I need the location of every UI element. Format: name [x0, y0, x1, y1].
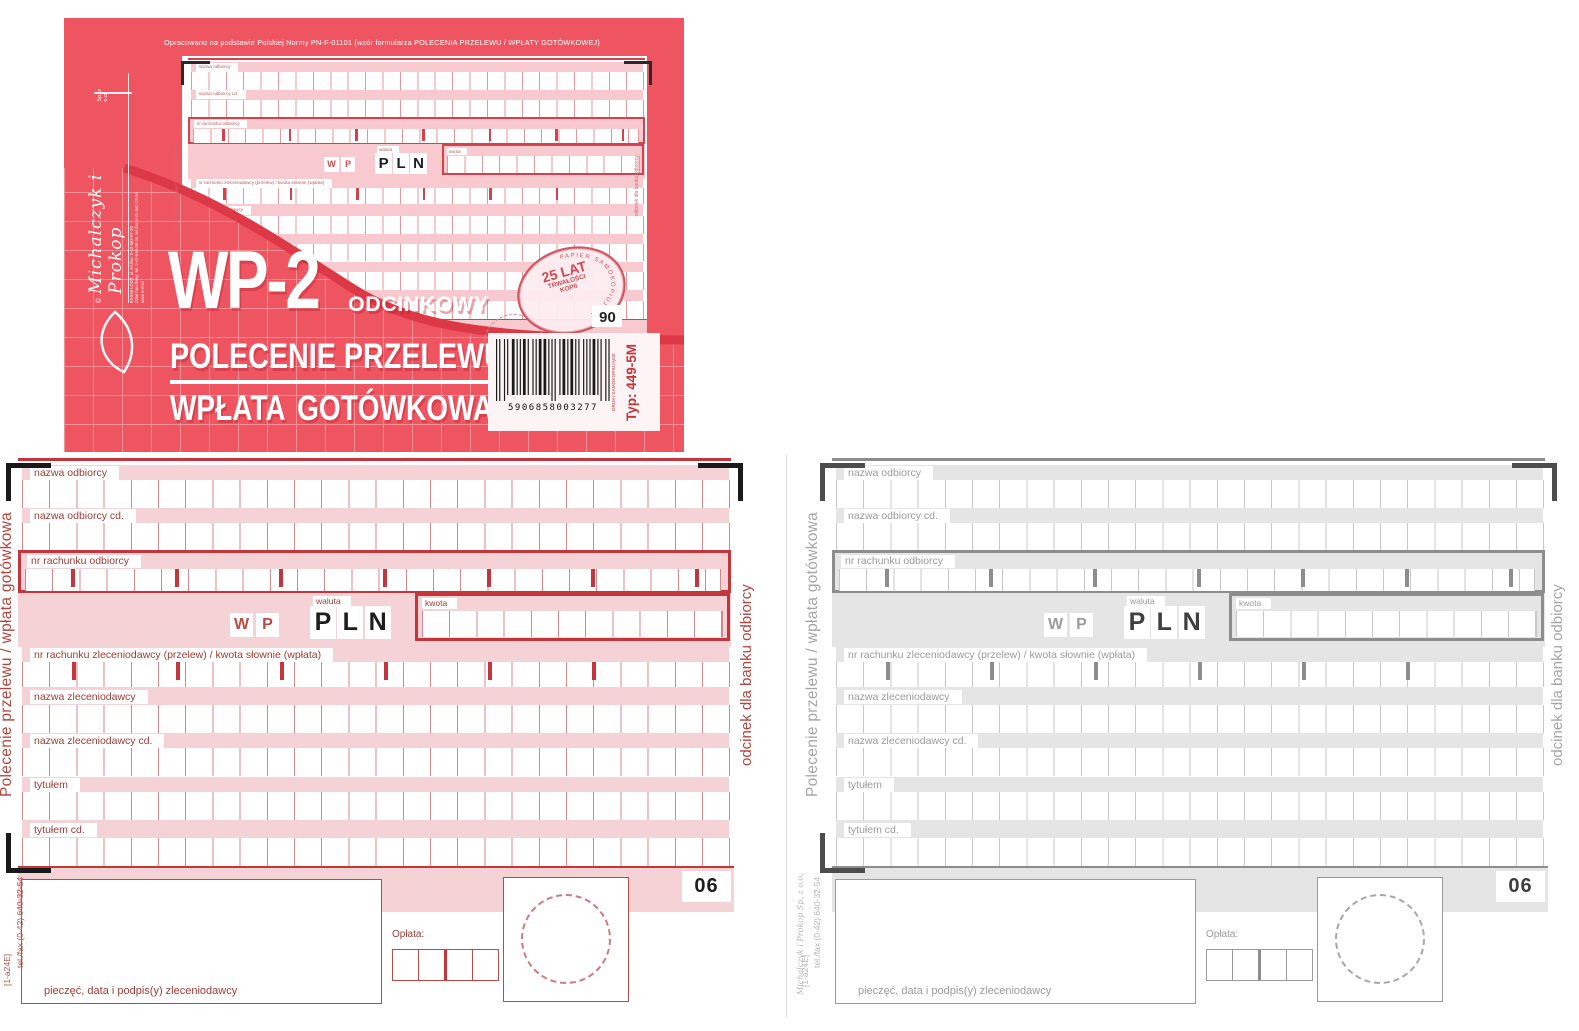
grid-cells	[22, 792, 730, 820]
barcode-print-type-label: DRUKI SAMOKOPIUJĄCE	[612, 337, 617, 427]
account-number-box: nr rachunku odbiorcy	[832, 550, 1545, 593]
digit-group-tick	[488, 662, 492, 680]
sheet-edge-divider	[786, 455, 787, 1017]
bank-stamp-circle	[1335, 894, 1425, 984]
currency-letter-box: N	[1179, 606, 1205, 639]
cover-sheet-number: 06	[592, 305, 622, 327]
barcode-digits: 5906858003277	[488, 403, 618, 413]
digit-group-tick	[1093, 569, 1097, 587]
grid-cells	[22, 748, 730, 776]
digit-group-tick	[989, 569, 993, 587]
field-label: kwota	[1236, 598, 1271, 609]
digit-group-tick	[1094, 662, 1098, 680]
wp-letter-box: W	[1044, 613, 1067, 637]
digit-group-tick	[695, 569, 699, 587]
digit-group-tick	[592, 662, 596, 680]
brand-name-line: © Michalczyk i Prokop Sp. z o.o.	[86, 73, 129, 303]
field-band: tytułem cd.	[836, 820, 1543, 838]
field-label: nr rachunku zleceniodawcy (przelew) / kw…	[30, 648, 333, 662]
digit-group-tick	[175, 569, 179, 587]
signature-label: pieczęć, data i podpis(y) zleceniodawcy	[44, 985, 237, 997]
currency-letter-box: N	[365, 606, 391, 639]
cover-sheet-number-value: 06	[599, 308, 616, 325]
digit-group-tick	[1509, 569, 1513, 587]
brand-block: © Michalczyk i Prokop Sp. z o.o. 93-558 …	[86, 73, 142, 303]
field-band: tytułem cd.	[22, 820, 729, 838]
field-label: nazwa zleceniodawcy	[844, 690, 962, 704]
signature-label: pieczęć, data i podpis(y) zleceniodawcy	[858, 985, 1051, 997]
digit-group-tick	[279, 569, 283, 587]
digit-group-tick	[1406, 662, 1410, 680]
grid-cells	[22, 838, 730, 866]
field-label: nazwa odbiorcy cd.	[30, 509, 136, 523]
bank-stamp-box	[1317, 877, 1443, 1002]
signature-box: pieczęć, data i podpis(y) zleceniodawcy	[21, 879, 382, 1004]
wp-letter-box: W	[230, 613, 253, 637]
wp-letter-box: P	[256, 613, 279, 637]
digit-group-tick	[384, 662, 388, 680]
fee-cell	[1287, 950, 1312, 980]
sheet-number: 06	[1496, 871, 1545, 902]
grid-cells	[836, 480, 1544, 508]
fee-cell	[1261, 950, 1287, 980]
grid-cells	[836, 662, 1544, 687]
field-band: tytułem	[22, 777, 729, 792]
account-number-box: nr rachunku odbiorcy	[18, 550, 731, 593]
transfer-form-original: nazwa odbiorcynazwa odbiorcy cd.nr rachu…	[8, 455, 734, 1011]
form-right-caption: odcinek dla banku odbiorcy	[738, 558, 755, 793]
fee-boxes	[392, 949, 499, 981]
currency-letter-box: P	[1124, 606, 1150, 639]
fee-cell	[1233, 950, 1261, 980]
amount-box: kwota	[415, 593, 730, 641]
digit-group-tick	[1198, 662, 1202, 680]
field-band: nr rachunku zleceniodawcy (przelew) / kw…	[836, 647, 1543, 662]
cover-sheet: nazwa odbiorcynazwa odbiorcy cd.nr rachu…	[64, 18, 684, 452]
grid-cells	[836, 705, 1544, 733]
digit-group-tick	[487, 569, 491, 587]
field-label: tytułem	[844, 778, 894, 792]
field-band: nazwa zleceniodawcy	[836, 687, 1543, 705]
digit-group-tick	[71, 569, 75, 587]
sheet-topline	[832, 458, 1545, 461]
grid-cells	[836, 748, 1544, 776]
grid-cells	[22, 523, 730, 551]
norm-reference-line: Opracowano na podstawie Polskiej Normy P…	[164, 38, 600, 47]
fee-label: Opłata:	[392, 929, 424, 940]
field-label: nr rachunku odbiorcy	[841, 555, 955, 568]
bank-stamp-circle	[521, 894, 611, 984]
corner-bracket-bl	[820, 833, 865, 873]
digit-group-tick	[885, 569, 889, 587]
grid-cells	[422, 611, 723, 637]
brand-logo-icon	[84, 310, 146, 376]
field-label: nr rachunku zleceniodawcy (przelew) / kw…	[844, 648, 1147, 662]
field-band: nazwa odbiorcy cd.	[836, 508, 1543, 523]
barcode-icon	[496, 339, 610, 401]
field-label: kwota	[422, 598, 457, 609]
currency-letter-box: P	[310, 606, 336, 639]
field-band: nazwa zleceniodawcy cd.	[22, 733, 729, 748]
grid-cells	[839, 569, 1535, 591]
grid-cells	[836, 838, 1544, 866]
field-band: tytułem	[836, 777, 1543, 792]
bank-stamp-box	[503, 877, 629, 1002]
field-band: nr rachunku zleceniodawcy (przelew) / kw…	[22, 647, 729, 662]
footer-phone: tel./fax (0-42) 640-32-54	[812, 866, 822, 978]
digit-group-tick	[72, 662, 76, 680]
field-label: nr rachunku odbiorcy	[27, 555, 141, 568]
corner-bracket-tr	[1512, 463, 1557, 501]
signature-box: pieczęć, data i podpis(y) zleceniodawcy	[835, 879, 1196, 1004]
field-label: nazwa zleceniodawcy cd.	[30, 734, 164, 748]
footer-form-code: [1-a24E]	[2, 938, 12, 1002]
digit-group-tick	[1197, 569, 1201, 587]
fee-cell	[419, 950, 447, 980]
transfer-form-copy: nazwa odbiorcynazwa odbiorcy cd.nr rachu…	[822, 455, 1548, 1011]
field-band: nazwa odbiorcy cd.	[22, 508, 729, 523]
fee-boxes	[1206, 949, 1313, 981]
field-label: tytułem	[30, 778, 80, 792]
form-right-caption: odcinek dla banku odbiorcy	[1549, 558, 1566, 793]
fee-cell	[473, 950, 498, 980]
digit-group-tick	[1301, 569, 1305, 587]
fee-cell	[393, 950, 419, 980]
product-title: WP-2	[168, 240, 319, 322]
barcode-model-label: Typ: 449-5M	[624, 335, 639, 429]
field-label: nazwa zleceniodawcy	[30, 690, 148, 704]
grid-cells	[22, 480, 730, 508]
currency-letter-box: L	[337, 606, 363, 639]
currency-letter-box: L	[1151, 606, 1177, 639]
subtitle-divider	[170, 380, 542, 384]
footer-phone: tel./fax (0-42) 640-32-54	[15, 866, 25, 978]
wp-letter-box: P	[1070, 613, 1093, 637]
digit-group-tick	[1302, 662, 1306, 680]
field-band: nazwa odbiorcy	[22, 465, 729, 480]
sheet-topline	[18, 458, 731, 461]
grid-cells	[22, 705, 730, 733]
brand-name: Michalczyk i Prokop	[86, 106, 126, 294]
product-subtitle-1: POLECENIE PRZELEWU	[170, 338, 505, 377]
field-label: nazwa odbiorcy cd.	[844, 509, 950, 523]
form-left-caption: Polecenie przelewu / wpłata gotówkowa	[804, 468, 822, 840]
product-title-suffix: ODCINKOWY	[348, 292, 489, 317]
fee-cell	[1207, 950, 1233, 980]
barcode-box: 5906858003277 DRUKI SAMOKOPIUJĄCE Typ: 4…	[488, 333, 660, 431]
field-band: nazwa odbiorcy	[836, 465, 1543, 480]
grid-cells	[1236, 611, 1537, 637]
field-band: nazwa zleceniodawcy cd.	[836, 733, 1543, 748]
digit-group-tick	[176, 662, 180, 680]
brand-suffix: Sp. z o.o.	[97, 79, 109, 102]
fee-cell	[447, 950, 473, 980]
digit-group-tick	[886, 662, 890, 680]
grid-cells	[22, 662, 730, 687]
digit-group-tick	[591, 569, 595, 587]
form-left-caption: Polecenie przelewu / wpłata gotówkowa	[0, 468, 16, 840]
copyright-mark: ©	[96, 298, 103, 303]
grid-cells	[836, 792, 1544, 820]
corner-bracket-tr	[698, 463, 743, 501]
amount-box: kwota	[1229, 593, 1544, 641]
mini-form-right-caption: odcinek dla banku odbiorcy	[634, 88, 640, 283]
brand-address-line: www e-mail	[140, 73, 145, 303]
grid-cells	[836, 523, 1544, 551]
footer-form-code: [1-a24E]	[800, 940, 810, 1002]
page: nazwa odbiorcynazwa odbiorcy cd.nr rachu…	[0, 0, 1579, 1031]
grid-cells	[25, 569, 721, 591]
fee-label: Opłata:	[1206, 929, 1238, 940]
corner-bracket-tl	[820, 463, 865, 501]
sheet-number: 06	[682, 871, 731, 902]
field-band: nazwa zleceniodawcy	[22, 687, 729, 705]
field-label: nazwa zleceniodawcy cd.	[844, 734, 978, 748]
digit-group-tick	[990, 662, 994, 680]
digit-group-tick	[280, 662, 284, 680]
product-subtitle-2: WPŁATA GOTÓWKOWA	[170, 390, 493, 429]
digit-group-tick	[1405, 569, 1409, 587]
digit-group-tick	[383, 569, 387, 587]
